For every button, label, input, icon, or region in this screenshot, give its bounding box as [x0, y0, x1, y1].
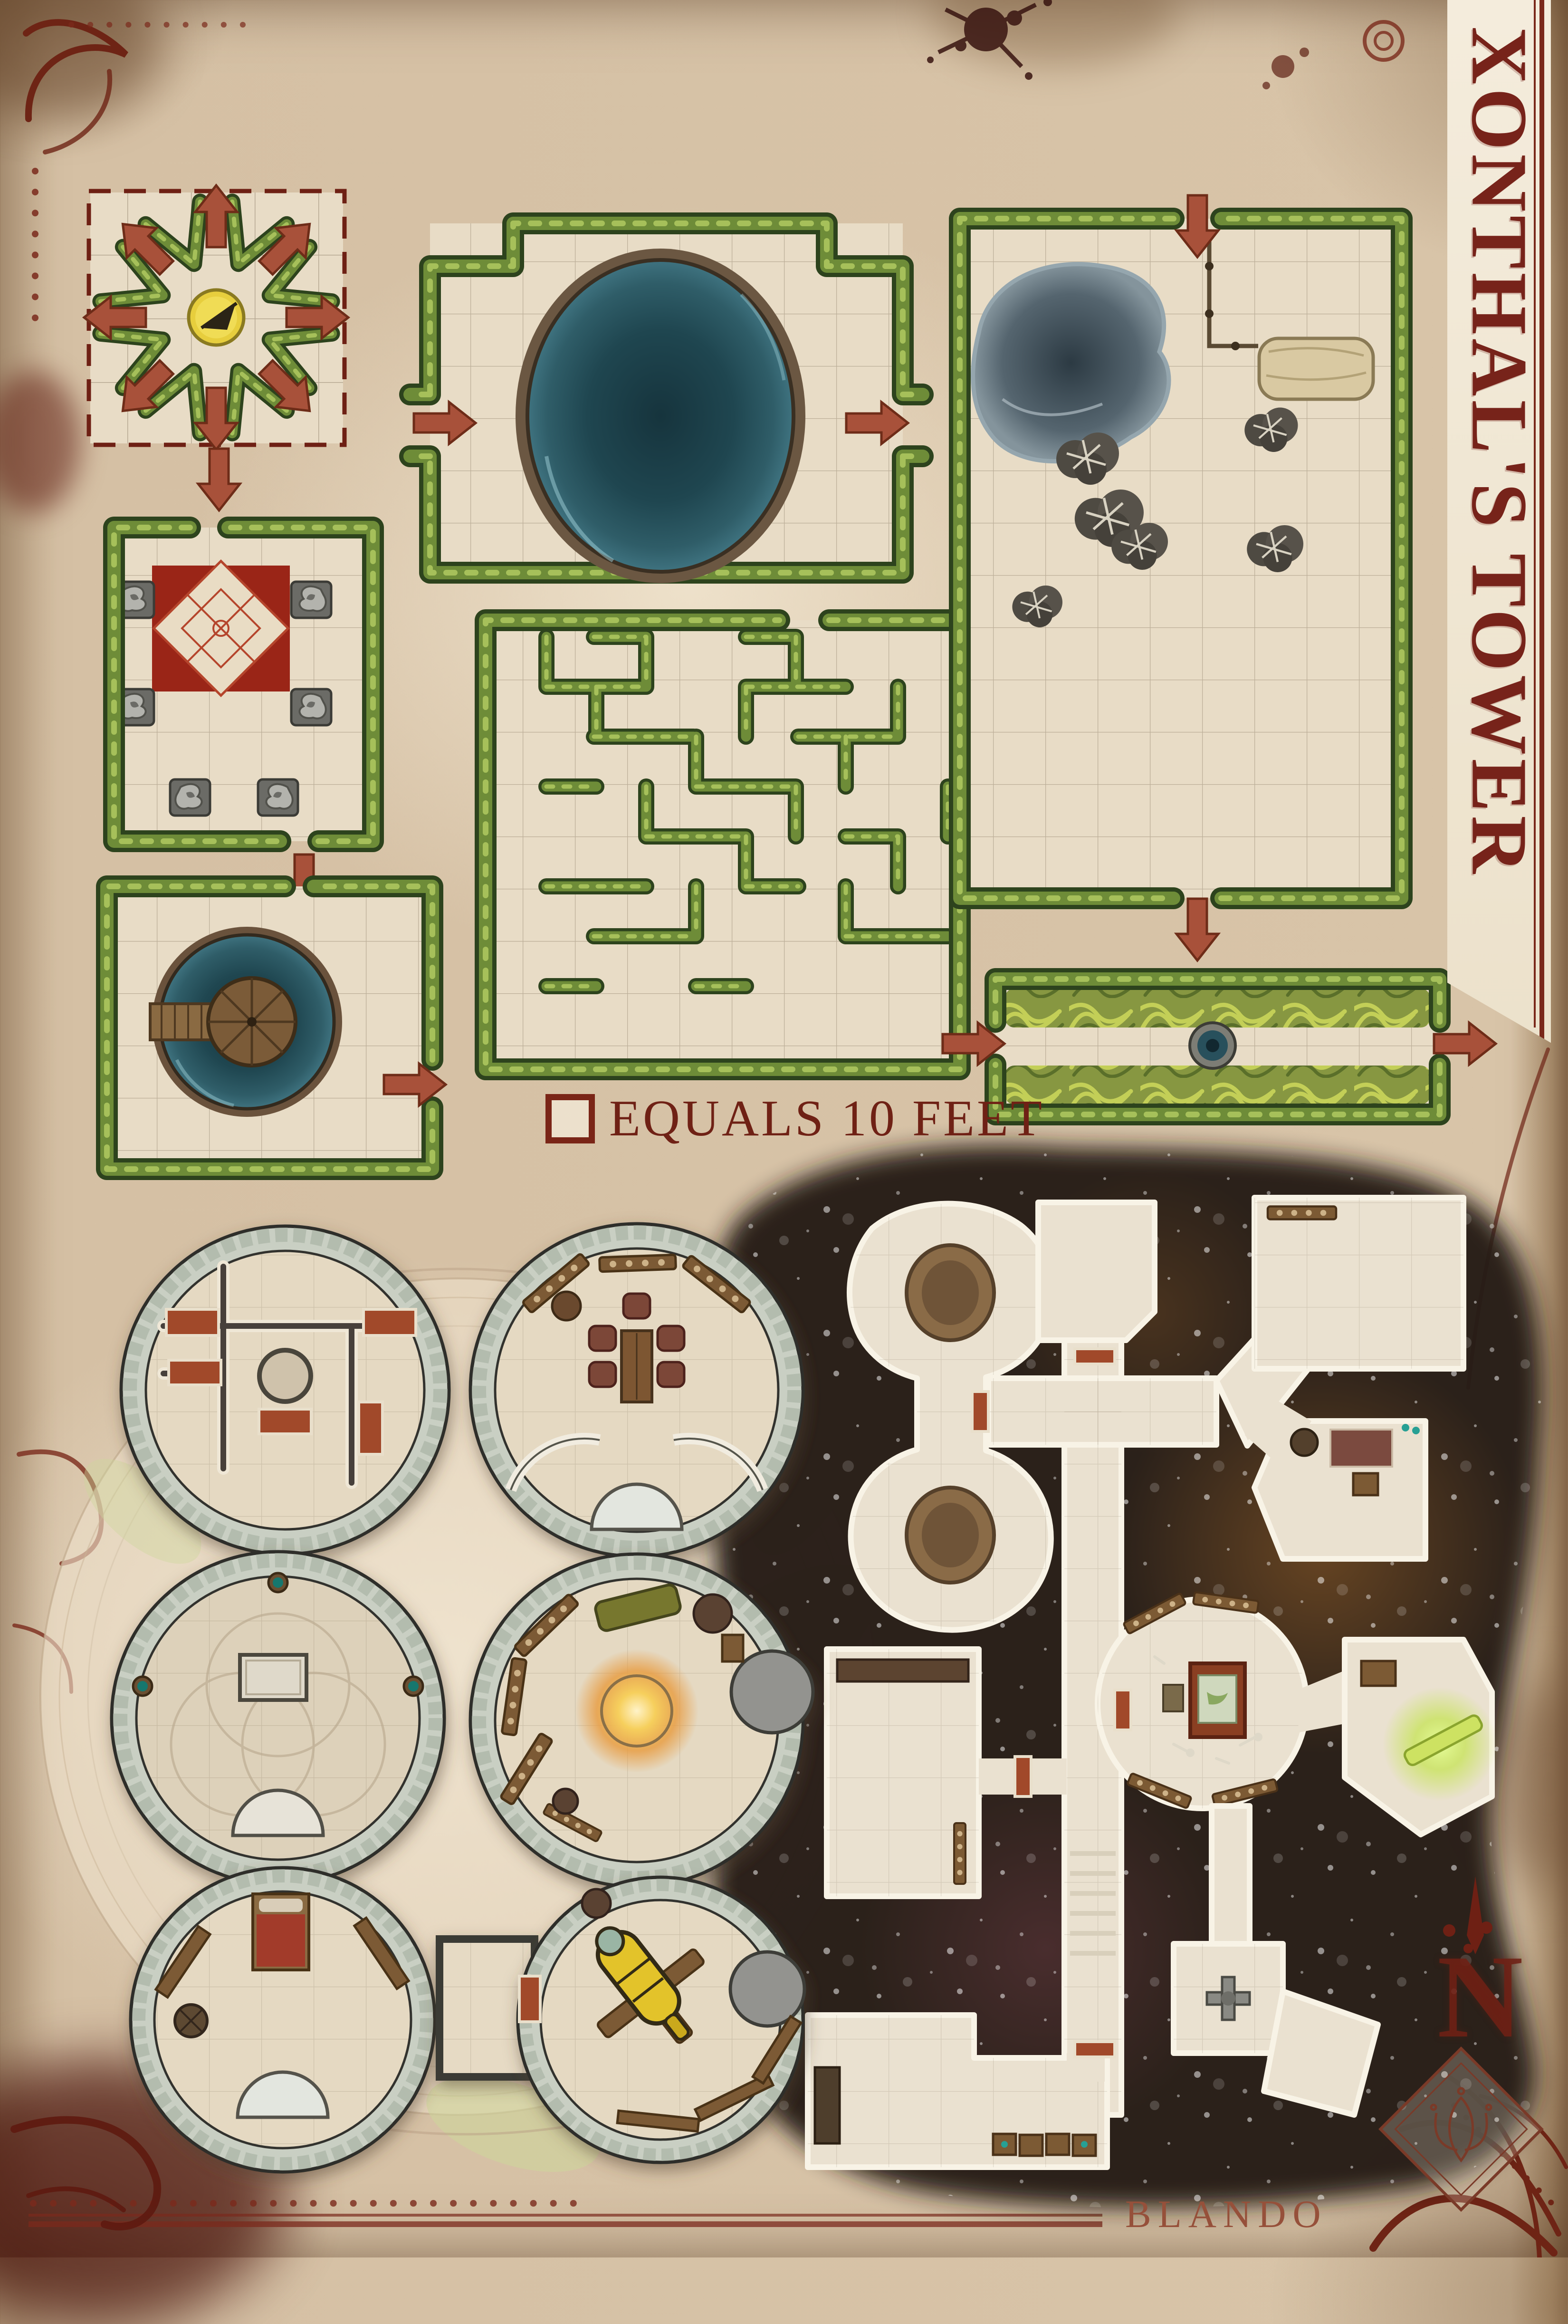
red-carpet	[152, 561, 290, 696]
tower-floor-bedroom	[131, 1868, 435, 2172]
wild-garden	[960, 195, 1402, 960]
corridor-well	[1190, 1023, 1235, 1068]
annex-door	[519, 1976, 540, 2022]
dungeon-level	[711, 1145, 1542, 2208]
hearth-glow	[575, 1649, 698, 1773]
arrow-hub-to-gargoyle	[198, 449, 240, 510]
tower-floor-observatory	[518, 1877, 804, 2162]
tower-floor-dining	[470, 1224, 803, 1556]
arrow-wild-out	[1176, 899, 1218, 960]
gargoyle-garden	[114, 528, 373, 916]
vine-band-top	[1005, 989, 1430, 1028]
teleport-hub	[84, 185, 348, 510]
artist-credit: BLANDO	[1125, 2192, 1328, 2237]
stone-alcove	[731, 1651, 813, 1733]
map-title: XONTHAL'S TOWER	[1453, 27, 1545, 1048]
altar-stone	[240, 1655, 306, 1700]
flourish-bottom-left	[14, 2120, 157, 2227]
central-shaft	[259, 1350, 311, 1402]
island-pool-garden	[107, 886, 446, 1169]
hedge-maze	[486, 620, 960, 1069]
vine-band-bottom	[1005, 1066, 1430, 1104]
title-banner: XONTHAL'S TOWER	[1447, 0, 1551, 1093]
wooden-pier	[150, 1004, 212, 1040]
sundial-icon	[189, 290, 244, 345]
ink-splat-right	[1262, 48, 1309, 89]
reflecting-pool	[516, 249, 805, 583]
scale-legend: EQUALS 10 FEET	[545, 1089, 1044, 1148]
stone-alcove	[730, 1952, 804, 2026]
banner-rule-thin	[1534, 0, 1536, 1028]
round-table	[694, 1594, 732, 1633]
wooden-platform	[208, 978, 296, 1066]
ink-splat-top	[927, 0, 1052, 80]
reflecting-pool-garden	[410, 223, 923, 583]
scale-legend-text: EQUALS 10 FEET	[609, 1089, 1044, 1148]
tower-floor-ritual	[112, 1552, 444, 1884]
tower-floor-barracks	[121, 1226, 449, 1554]
ring-emblem	[1365, 22, 1403, 60]
pond	[973, 264, 1169, 461]
compass-north-label: N	[1418, 1929, 1542, 2065]
bed	[253, 1894, 309, 1970]
banner-rule-thick	[1539, 0, 1544, 1049]
scale-square-icon	[545, 1094, 595, 1143]
